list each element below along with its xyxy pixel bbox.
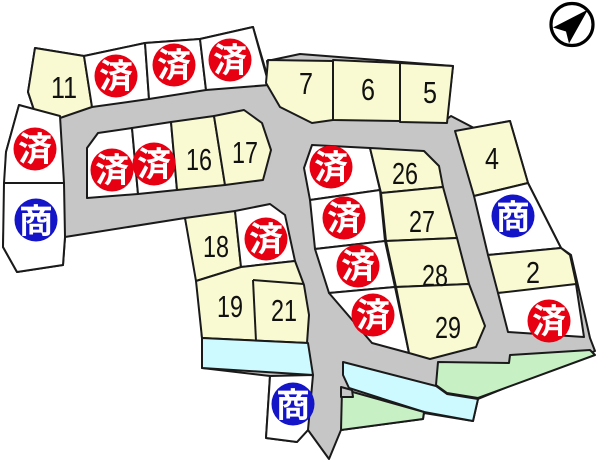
svg-text:21: 21 xyxy=(271,293,297,328)
svg-text:18: 18 xyxy=(203,229,229,264)
svg-text:16: 16 xyxy=(186,142,212,177)
svg-text:5: 5 xyxy=(423,75,437,110)
svg-text:28: 28 xyxy=(422,258,448,293)
svg-text:17: 17 xyxy=(232,135,258,170)
svg-text:26: 26 xyxy=(392,156,418,191)
svg-text:11: 11 xyxy=(51,70,77,105)
svg-text:4: 4 xyxy=(485,141,499,176)
svg-text:2: 2 xyxy=(526,255,540,290)
svg-text:29: 29 xyxy=(435,310,461,345)
svg-text:6: 6 xyxy=(361,72,375,107)
svg-text:19: 19 xyxy=(217,289,243,324)
svg-text:27: 27 xyxy=(409,204,435,239)
svg-text:7: 7 xyxy=(299,66,313,101)
